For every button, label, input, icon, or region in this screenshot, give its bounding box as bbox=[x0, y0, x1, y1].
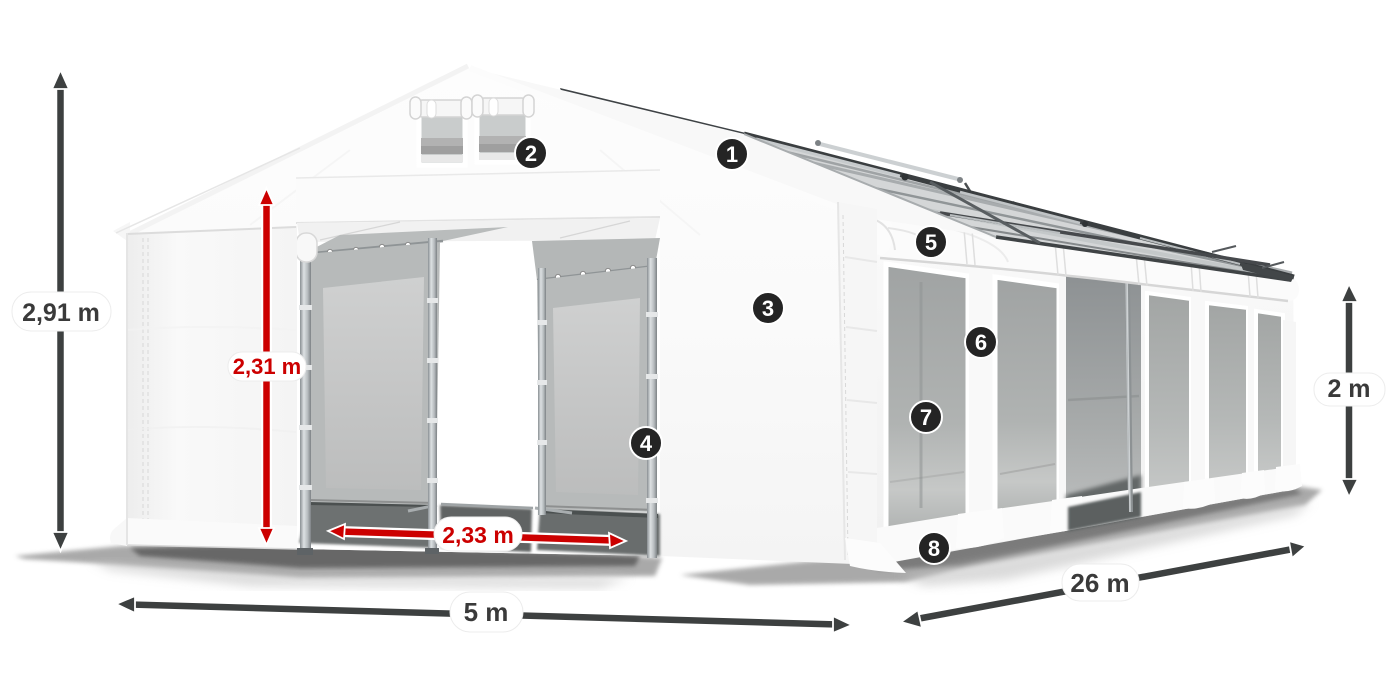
svg-text:2,31 m: 2,31 m bbox=[233, 354, 302, 379]
svg-text:2,91 m: 2,91 m bbox=[22, 299, 100, 327]
svg-text:7: 7 bbox=[920, 405, 932, 430]
svg-text:3: 3 bbox=[762, 296, 774, 321]
svg-text:6: 6 bbox=[975, 330, 987, 355]
svg-text:8: 8 bbox=[928, 536, 940, 561]
svg-text:26 m: 26 m bbox=[1070, 568, 1129, 598]
svg-text:2,33 m: 2,33 m bbox=[442, 522, 514, 548]
svg-text:2: 2 bbox=[525, 141, 537, 166]
svg-text:5: 5 bbox=[925, 230, 937, 255]
svg-text:4: 4 bbox=[640, 431, 653, 456]
svg-text:2 m: 2 m bbox=[1327, 375, 1370, 403]
svg-text:5 m: 5 m bbox=[464, 597, 509, 627]
svg-text:1: 1 bbox=[726, 142, 738, 167]
